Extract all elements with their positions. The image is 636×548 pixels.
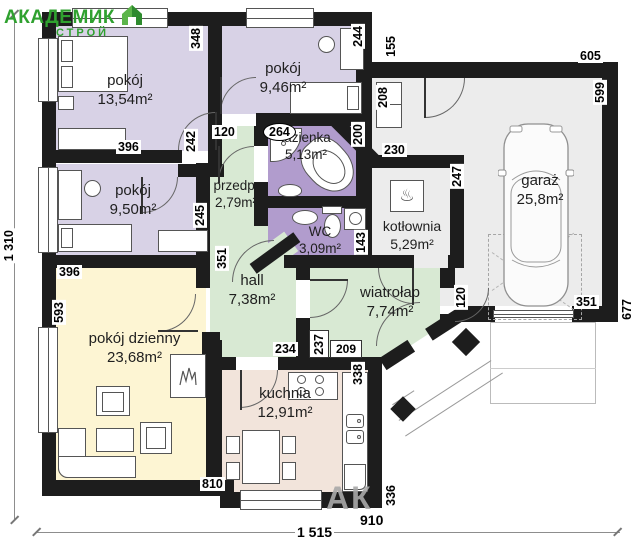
logo-house-icon — [120, 3, 144, 27]
wall — [296, 268, 310, 280]
dim-200: 200 — [351, 122, 365, 147]
room-label-living: pokój dzienny23,68m² — [62, 330, 207, 368]
window — [38, 327, 58, 433]
logo-subtext: СТРОЙ — [56, 28, 144, 39]
room-name: pokój — [88, 182, 178, 201]
dim-264: 264 — [263, 123, 296, 141]
boiler-icon: ♨ — [390, 180, 424, 212]
window — [240, 490, 322, 510]
armchair-seat — [102, 392, 124, 412]
room-name: przedp. — [205, 178, 267, 195]
dim-155: 155 — [384, 34, 398, 59]
pillow — [61, 66, 73, 88]
dim-237: 237 — [309, 330, 329, 358]
room-area: 2,79m² — [205, 195, 267, 212]
chair — [226, 436, 240, 454]
pillow — [347, 86, 359, 110]
drain — [357, 419, 361, 423]
overall-height-label: 1 310 — [2, 228, 16, 263]
room-area: 5,13m² — [266, 147, 346, 164]
dresser — [158, 230, 208, 252]
room-label-hallway: przedp.2,79m² — [205, 178, 267, 212]
room-name: pokój — [238, 60, 328, 79]
dim-599: 599 — [593, 80, 607, 105]
garage-door-opening — [493, 310, 574, 318]
logo-text: АКАДЕМИК — [4, 7, 115, 28]
door-leaf — [424, 78, 426, 118]
window — [246, 8, 314, 28]
kitchen-sink — [346, 430, 364, 444]
overall-width-label: 1 515 — [295, 525, 334, 539]
room-label-garage: garaż25,8m² — [495, 172, 585, 210]
dim-338: 338 — [351, 362, 365, 387]
room-name: pokój — [80, 72, 170, 91]
room-name: kuchnia — [220, 385, 350, 404]
room-label-vestibule: wiatrołap7,74m² — [330, 284, 450, 322]
nightstand — [58, 96, 74, 110]
room-area: 12,91m² — [220, 404, 350, 423]
dim-245: 245 — [193, 203, 207, 228]
driveway — [490, 322, 596, 404]
boiler-glyph: ♨ — [399, 186, 414, 206]
coffee-table — [96, 428, 134, 452]
car-icon — [498, 120, 574, 310]
armchair-seat — [146, 427, 166, 449]
burner — [315, 375, 324, 384]
sofa — [58, 456, 136, 478]
room-name: garaż — [495, 172, 585, 191]
dim-208: 208 — [376, 85, 390, 110]
room-label-room2: pokój9,46m² — [238, 60, 328, 98]
door-leaf — [310, 279, 348, 281]
room-name: kotłownia — [368, 218, 456, 236]
dim-244: 244 — [351, 24, 365, 49]
porch-column — [390, 396, 415, 421]
room-area: 23,68m² — [62, 349, 207, 368]
toilet-tank — [322, 206, 342, 214]
dim-143: 143 — [354, 230, 368, 255]
dim-351-a: 351 — [215, 246, 229, 271]
chair — [226, 462, 240, 480]
dim-120-a: 120 — [212, 125, 237, 139]
room-area: 9,50m² — [88, 201, 178, 220]
dim-351-b: 351 — [574, 295, 599, 309]
wall — [372, 62, 618, 78]
room-area: 7,38m² — [207, 291, 297, 310]
dimension-line-left — [14, 14, 15, 520]
room-label-wc: WC3,09m² — [292, 224, 348, 258]
room-name: hall — [207, 272, 297, 291]
sink — [292, 210, 318, 225]
room-name: wiatrołap — [330, 284, 450, 303]
chair — [282, 462, 296, 480]
drain — [357, 435, 361, 439]
dim-348: 348 — [189, 26, 203, 51]
dim-120-b: 120 — [454, 285, 468, 310]
dim-336: 336 — [384, 483, 398, 508]
washing-machine-drum — [349, 212, 362, 225]
dim-396-b: 396 — [57, 265, 82, 279]
dim-247: 247 — [450, 164, 464, 189]
door-leaf — [220, 77, 222, 114]
room-area: 5,29m² — [368, 236, 456, 254]
room-area: 13,54m² — [80, 91, 170, 110]
room-name: pokój dzienny — [62, 330, 207, 349]
wall — [278, 357, 382, 370]
room-label-hall: hall7,38m² — [207, 272, 297, 310]
chair — [282, 436, 296, 454]
dim-396-a: 396 — [116, 140, 141, 154]
burner — [297, 375, 306, 384]
dim-593: 593 — [52, 300, 66, 325]
chair — [318, 36, 335, 53]
wall — [296, 318, 310, 357]
dim-234: 234 — [273, 342, 298, 356]
wall — [256, 196, 372, 208]
room-label-room1: pokój13,54m² — [80, 72, 170, 110]
pillow — [61, 40, 73, 62]
pillow — [61, 228, 73, 248]
window — [38, 167, 58, 253]
sink — [278, 184, 302, 197]
room-area: 25,8m² — [495, 191, 585, 210]
window — [38, 38, 58, 102]
room-label-boiler: kotłownia5,29m² — [368, 218, 456, 253]
room-name: WC — [292, 224, 348, 241]
room-area: 3,09m² — [292, 241, 348, 258]
room-label-kitchen: kuchnia12,91m² — [220, 385, 350, 423]
dining-table — [242, 430, 280, 484]
wall — [42, 150, 182, 163]
room-label-room3: pokój9,50m² — [88, 182, 178, 220]
dim-677: 677 — [620, 297, 634, 322]
room-area: 9,46m² — [238, 79, 328, 98]
dim-230: 230 — [382, 143, 407, 157]
room-area: 7,74m² — [330, 303, 450, 322]
watermark: АК — [326, 482, 373, 514]
floor-plan: АКАДЕМИК СТРОЙ 1 310 1 515 — [0, 0, 636, 548]
wall — [206, 357, 236, 370]
dim-605: 605 — [578, 49, 603, 63]
logo: АКАДЕМИК СТРОЙ — [4, 3, 144, 39]
desk — [58, 170, 82, 220]
driveway-line — [490, 368, 596, 369]
dim-209: 209 — [330, 340, 362, 358]
dim-810: 810 — [200, 477, 225, 491]
dim-242: 242 — [184, 129, 198, 154]
